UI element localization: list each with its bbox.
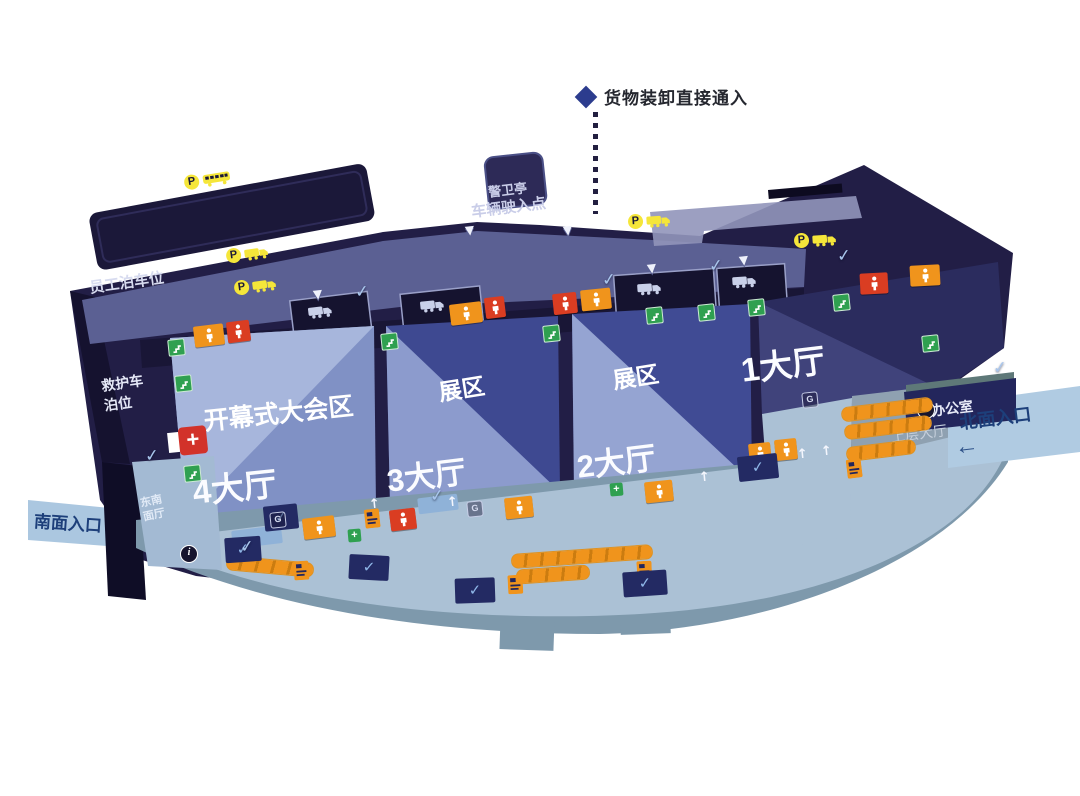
down-arrow-icon: ▼ xyxy=(738,254,748,267)
exit-stairs-icon xyxy=(697,303,716,322)
entrance-check-icon: ✓ xyxy=(737,453,779,482)
toilet-icon xyxy=(774,438,798,461)
toilet-icon xyxy=(389,507,417,531)
ticket-machine-icon xyxy=(293,561,310,586)
toilet-icon xyxy=(859,272,888,294)
up-arrow-icon: ↑ xyxy=(796,447,808,461)
truck-icon xyxy=(251,275,279,293)
parking-icon: P xyxy=(628,214,644,230)
ticket-machine-icon xyxy=(846,458,864,484)
truck-icon xyxy=(645,211,672,228)
toilet-icon xyxy=(644,480,674,504)
parking-icon: P xyxy=(183,174,200,191)
toilet-icon xyxy=(552,292,578,315)
exit-stairs-icon xyxy=(747,298,766,317)
entrance-check-icon: ✓ xyxy=(836,247,852,265)
facility-icon: G xyxy=(466,500,484,518)
parking-group: P xyxy=(225,243,271,264)
facility-icon: G xyxy=(269,511,287,529)
exit-stairs-icon xyxy=(832,293,851,312)
parking-icon: P xyxy=(233,279,250,296)
toilet-icon xyxy=(226,320,251,344)
down-arrow-icon: ▼ xyxy=(464,224,474,237)
entrance-check-icon: ✓ xyxy=(601,271,617,289)
up-arrow-icon: ↑ xyxy=(698,470,710,484)
entrance-check-icon: ✓ xyxy=(239,538,255,556)
first-aid-icon: + xyxy=(609,482,623,496)
entrance-check-icon: ✓ xyxy=(348,554,389,581)
first-aid-icon: + xyxy=(347,528,361,542)
exit-stairs-icon xyxy=(380,332,399,351)
toilet-icon xyxy=(580,287,612,311)
toilet-icon xyxy=(504,496,534,520)
exit-stairs-icon xyxy=(542,324,561,343)
down-arrow-icon: ▼ xyxy=(312,288,322,301)
ticket-machine-icon xyxy=(507,575,523,600)
up-arrow-icon: ↑ xyxy=(820,444,832,458)
toilet-icon xyxy=(302,515,336,540)
toilet-icon xyxy=(193,323,225,347)
exit-stairs-icon xyxy=(167,338,186,357)
entrance-check-icon: ✓ xyxy=(622,569,668,597)
parking-icon: P xyxy=(794,233,810,249)
entrance-check-icon: ✓ xyxy=(429,487,445,505)
exit-stairs-icon xyxy=(174,374,193,393)
bus-icon xyxy=(201,168,233,188)
parking-group: P xyxy=(628,211,673,229)
parking-group: P xyxy=(183,168,233,190)
entrance-check-icon: ✓ xyxy=(354,283,370,301)
entrance-check-icon: ✓ xyxy=(144,447,160,465)
up-arrow-icon: ↑ xyxy=(368,497,380,511)
truck-icon xyxy=(811,230,838,247)
venue-floor-map: 货物装卸直接通入 警卫亭 车辆驶入点 员工泊车位 救护车 泊位 东南 面厅 开幕… xyxy=(0,0,1080,796)
up-arrow-icon: ↑ xyxy=(446,495,458,509)
exit-stairs-icon xyxy=(183,464,202,483)
parking-group: P xyxy=(233,275,279,296)
loading-dock-truck-icon xyxy=(307,301,335,324)
loading-dock-truck-icon xyxy=(731,272,758,294)
toilet-icon xyxy=(449,301,483,326)
loading-dock-truck-icon xyxy=(636,279,663,301)
down-arrow-icon: ▼ xyxy=(646,262,656,275)
entrance-check-icon: ✓ xyxy=(708,257,724,275)
facility-icon: G xyxy=(801,391,819,409)
parking-group: P xyxy=(794,230,839,248)
parking-icon: P xyxy=(225,247,242,264)
down-arrow-icon: ▼ xyxy=(562,224,572,237)
toilet-icon xyxy=(909,264,940,287)
info-icon: i xyxy=(180,545,198,563)
icon-layer: PPPPP+++ii✓✓✓✓✓✓✓✓✓✓✓✓✓✓▼▼▼▼▼↑↑↑↑↑GGG xyxy=(0,0,1080,796)
truck-icon xyxy=(243,243,271,261)
exit-stairs-icon xyxy=(921,334,940,353)
first-aid-icon: + xyxy=(167,425,209,457)
exit-stairs-icon xyxy=(645,306,664,325)
entrance-check-icon: ✓ xyxy=(992,359,1008,377)
loading-dock-truck-icon xyxy=(419,296,447,319)
toilet-icon xyxy=(484,296,506,319)
entrance-check-icon: ✓ xyxy=(455,577,496,603)
